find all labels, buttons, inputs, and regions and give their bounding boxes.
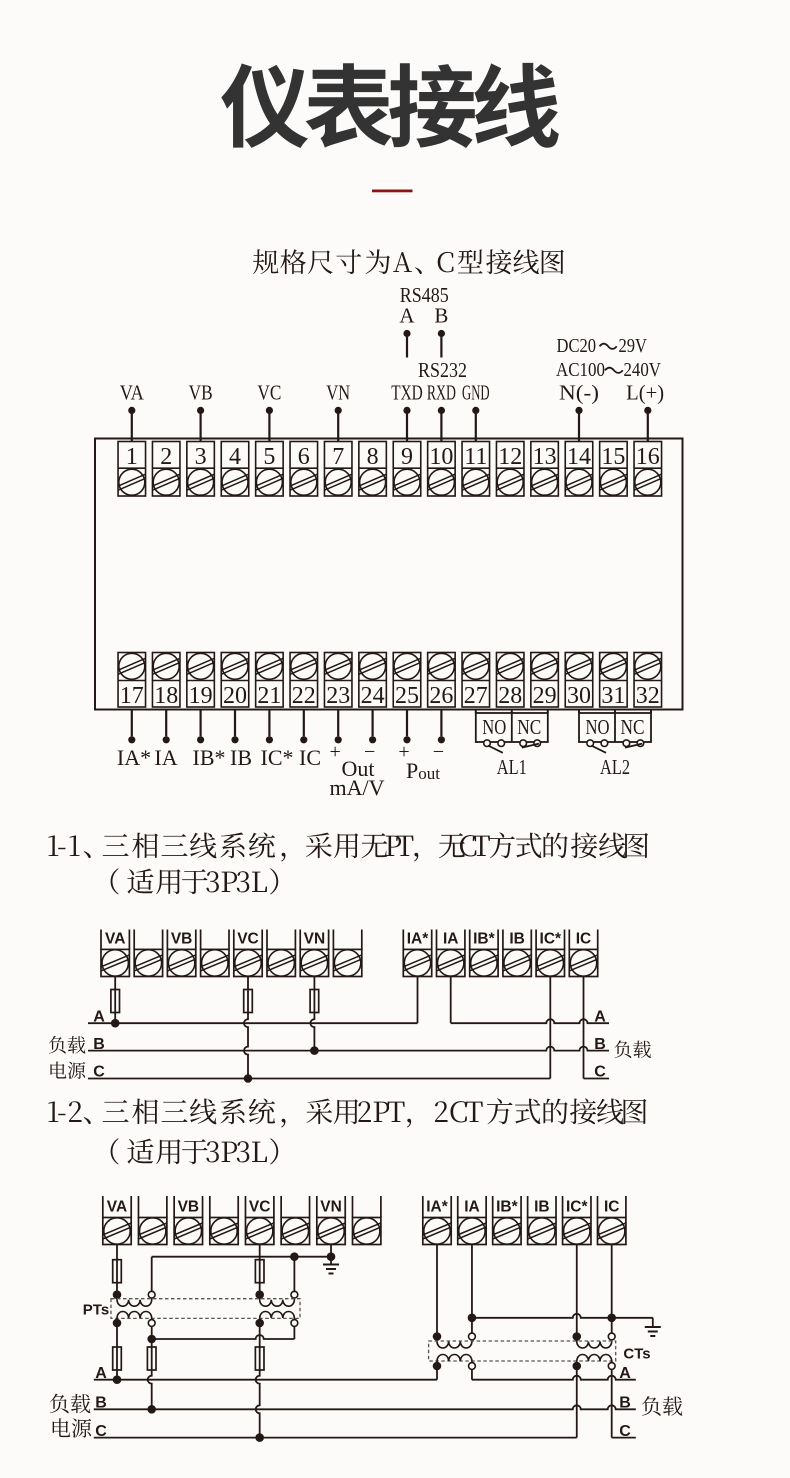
svg-text:12: 12 <box>498 444 522 470</box>
svg-text:VC: VC <box>237 930 259 947</box>
svg-text:IB: IB <box>534 1199 550 1216</box>
svg-text:VA: VA <box>120 381 145 405</box>
svg-text:IA*: IA* <box>426 1199 449 1216</box>
svg-text:A: A <box>95 1365 107 1382</box>
svg-text:8: 8 <box>367 444 379 470</box>
svg-text:NC: NC <box>517 715 541 739</box>
svg-text:27: 27 <box>464 683 488 709</box>
svg-text:IA: IA <box>443 930 459 947</box>
svg-text:IB: IB <box>509 930 525 947</box>
svg-text:+: + <box>330 741 341 763</box>
svg-text:B: B <box>619 1395 631 1412</box>
svg-text:−: − <box>433 741 444 763</box>
svg-text:GND: GND <box>462 381 490 405</box>
svg-text:19: 19 <box>189 683 213 709</box>
svg-text:30: 30 <box>567 683 591 709</box>
svg-text:VB: VB <box>171 930 193 947</box>
svg-text:A: A <box>594 1009 606 1026</box>
svg-text:RS232: RS232 <box>418 358 467 382</box>
svg-text:22: 22 <box>292 683 316 709</box>
svg-text:VB: VB <box>189 381 213 405</box>
svg-text:AL2: AL2 <box>600 755 630 779</box>
svg-text:L(+): L(+) <box>626 381 664 405</box>
svg-text:IC*: IC* <box>261 745 294 770</box>
svg-text:25: 25 <box>395 683 419 709</box>
svg-text:IA*: IA* <box>117 745 151 770</box>
svg-text:IB*: IB* <box>473 930 496 947</box>
svg-text:IA: IA <box>154 745 177 770</box>
svg-text:A: A <box>93 1009 105 1026</box>
svg-text:B: B <box>93 1036 105 1053</box>
svg-text:RXD: RXD <box>427 381 456 405</box>
svg-text:9: 9 <box>401 444 413 470</box>
svg-text:N(-): N(-) <box>559 381 599 405</box>
svg-text:A: A <box>619 1365 631 1382</box>
svg-text:TXD: TXD <box>391 381 423 405</box>
svg-text:32: 32 <box>636 683 660 709</box>
svg-text:NO: NO <box>586 715 610 739</box>
svg-text:IC: IC <box>604 1199 620 1216</box>
svg-text:B: B <box>434 304 448 328</box>
svg-text:21: 21 <box>257 683 281 709</box>
svg-text:24: 24 <box>361 683 385 709</box>
svg-text:CTs: CTs <box>623 1346 650 1363</box>
svg-text:VA: VA <box>105 930 125 947</box>
svg-text:IB*: IB* <box>496 1199 519 1216</box>
svg-text:DC20: DC20 <box>557 335 597 357</box>
svg-text:17: 17 <box>120 683 144 709</box>
svg-text:VC: VC <box>249 1199 271 1216</box>
svg-text:VN: VN <box>320 1199 342 1216</box>
svg-text:IB*: IB* <box>193 745 226 770</box>
svg-text:C: C <box>93 1064 105 1081</box>
svg-text:14: 14 <box>567 444 591 470</box>
svg-text:A: A <box>399 304 415 328</box>
svg-text:NO: NO <box>482 715 506 739</box>
svg-text:VN: VN <box>304 930 326 947</box>
svg-text:IC*: IC* <box>566 1199 589 1216</box>
svg-text:AL1: AL1 <box>497 755 527 779</box>
svg-text:C: C <box>619 1423 631 1440</box>
svg-text:AC100: AC100 <box>556 359 605 381</box>
svg-text:20: 20 <box>223 683 247 709</box>
svg-text:B: B <box>95 1395 107 1412</box>
svg-text:VC: VC <box>257 381 281 405</box>
svg-text:3: 3 <box>195 444 207 470</box>
svg-text:IB: IB <box>230 745 252 770</box>
svg-text:VB: VB <box>178 1199 200 1216</box>
svg-text:mA/V: mA/V <box>330 775 385 800</box>
svg-text:28: 28 <box>498 683 522 709</box>
svg-text:13: 13 <box>533 444 557 470</box>
svg-text:4: 4 <box>229 444 241 470</box>
svg-text:NC: NC <box>621 715 645 739</box>
svg-text:5: 5 <box>263 444 275 470</box>
svg-text:VN: VN <box>326 381 350 405</box>
svg-text:29V: 29V <box>619 335 648 357</box>
svg-text:IA*: IA* <box>407 930 430 947</box>
svg-text:B: B <box>594 1036 606 1053</box>
svg-text:15: 15 <box>601 444 625 470</box>
svg-text:10: 10 <box>429 444 453 470</box>
svg-text:18: 18 <box>154 683 178 709</box>
svg-text:IC*: IC* <box>540 930 563 947</box>
svg-text:16: 16 <box>636 444 660 470</box>
svg-text:11: 11 <box>464 444 487 470</box>
svg-text:31: 31 <box>601 683 625 709</box>
svg-text:2: 2 <box>160 444 172 470</box>
svg-text:IC: IC <box>299 745 321 770</box>
svg-text:6: 6 <box>298 444 310 470</box>
svg-text:C: C <box>95 1423 107 1440</box>
svg-text:IC: IC <box>576 930 592 947</box>
svg-text:240V: 240V <box>624 359 662 381</box>
svg-text:1: 1 <box>126 444 138 470</box>
svg-text:PTs: PTs <box>83 1302 109 1319</box>
svg-text:29: 29 <box>533 683 557 709</box>
svg-text:VA: VA <box>107 1199 127 1216</box>
svg-text:IA: IA <box>464 1199 480 1216</box>
svg-text:C: C <box>594 1064 606 1081</box>
svg-text:7: 7 <box>332 444 344 470</box>
svg-text:23: 23 <box>326 683 350 709</box>
svg-text:26: 26 <box>429 683 453 709</box>
